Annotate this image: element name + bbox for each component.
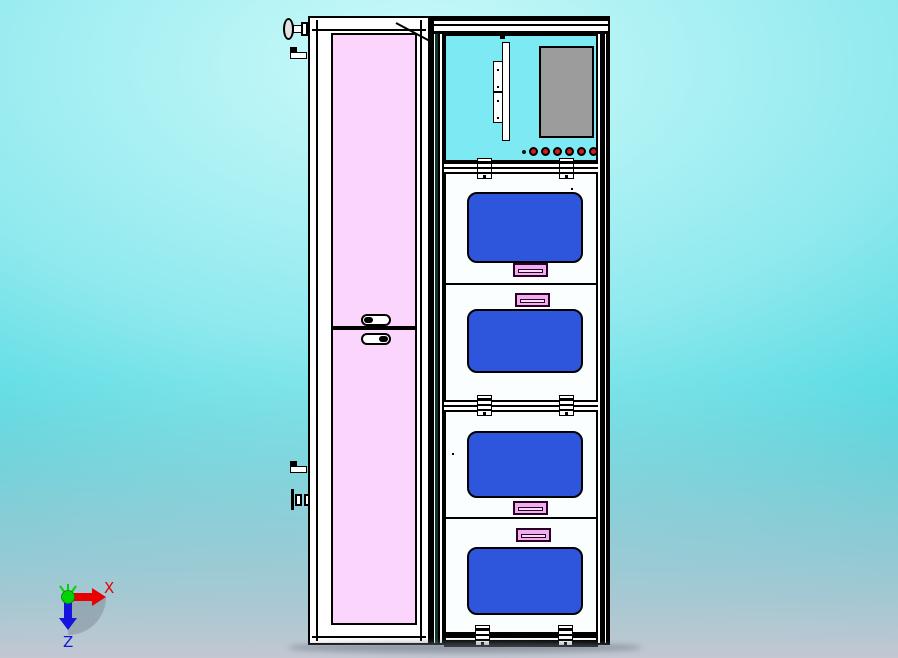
door-handle[interactable] — [361, 333, 391, 345]
hinge-block[interactable] — [477, 395, 492, 416]
hinge-pin-bar[interactable] — [291, 489, 294, 510]
x-axis-label: X — [104, 579, 114, 597]
left-cabinet[interactable] — [308, 16, 430, 645]
pink-door-upper[interactable] — [331, 33, 417, 328]
frame-rail-mid — [444, 162, 598, 174]
door-window-1[interactable] — [467, 192, 583, 263]
monitor-bracket-plate[interactable] — [493, 92, 503, 123]
push-button-red[interactable] — [589, 147, 598, 156]
cabinet-door-4[interactable] — [444, 519, 598, 647]
hinge-block[interactable] — [559, 395, 574, 416]
hinge-block[interactable] — [477, 158, 492, 179]
monitor-screen[interactable] — [539, 46, 594, 138]
monitor-bracket-plate[interactable] — [493, 61, 503, 92]
frame-line — [316, 20, 318, 641]
frame-extrusion-left — [432, 18, 444, 643]
machine-assembly[interactable] — [308, 16, 610, 645]
machine-shadow — [289, 642, 641, 653]
frame-rail-top — [434, 18, 608, 34]
push-button-red[interactable] — [565, 147, 574, 156]
door-window-2[interactable] — [467, 309, 583, 373]
triad-shadow — [68, 597, 106, 635]
door-window-3[interactable] — [467, 431, 583, 498]
door-latch-top[interactable] — [290, 52, 307, 59]
spec-dot — [571, 188, 573, 190]
cabinet-door-1[interactable] — [444, 174, 598, 285]
leveling-foot[interactable] — [283, 16, 310, 44]
door-latch-bottom[interactable] — [290, 466, 307, 473]
indicator-dot — [522, 150, 526, 154]
push-button-red[interactable] — [529, 147, 538, 156]
door-handle[interactable] — [515, 293, 550, 307]
push-button-red[interactable] — [553, 147, 562, 156]
door-handle[interactable] — [513, 501, 548, 515]
door-handle[interactable] — [361, 314, 391, 326]
control-button-row — [522, 147, 598, 156]
frame-line — [420, 20, 422, 641]
foot-collar — [301, 22, 308, 36]
frame-line — [312, 636, 426, 638]
fastener-mark — [500, 36, 505, 39]
cabinet-door-3[interactable] — [444, 412, 598, 519]
monitor-bracket-rail[interactable] — [502, 42, 510, 141]
z-axis-label: Z — [63, 633, 73, 651]
door-handle[interactable] — [513, 263, 548, 277]
door-handle[interactable] — [516, 528, 551, 542]
cabinet-door-2[interactable] — [444, 285, 598, 400]
frame-rail-mid — [444, 400, 598, 412]
cad-viewport: X Z — [0, 0, 898, 658]
push-button-red[interactable] — [541, 147, 550, 156]
pink-door-lower[interactable] — [331, 328, 417, 625]
hmi-panel[interactable] — [444, 34, 598, 162]
hinge-block[interactable] — [559, 158, 574, 179]
right-cabinet[interactable] — [430, 16, 610, 645]
spec-dot — [452, 453, 454, 455]
origin-ball — [62, 591, 75, 604]
orientation-triad: X Z — [46, 572, 142, 656]
push-button-red[interactable] — [577, 147, 586, 156]
door-window-4[interactable] — [467, 547, 583, 615]
